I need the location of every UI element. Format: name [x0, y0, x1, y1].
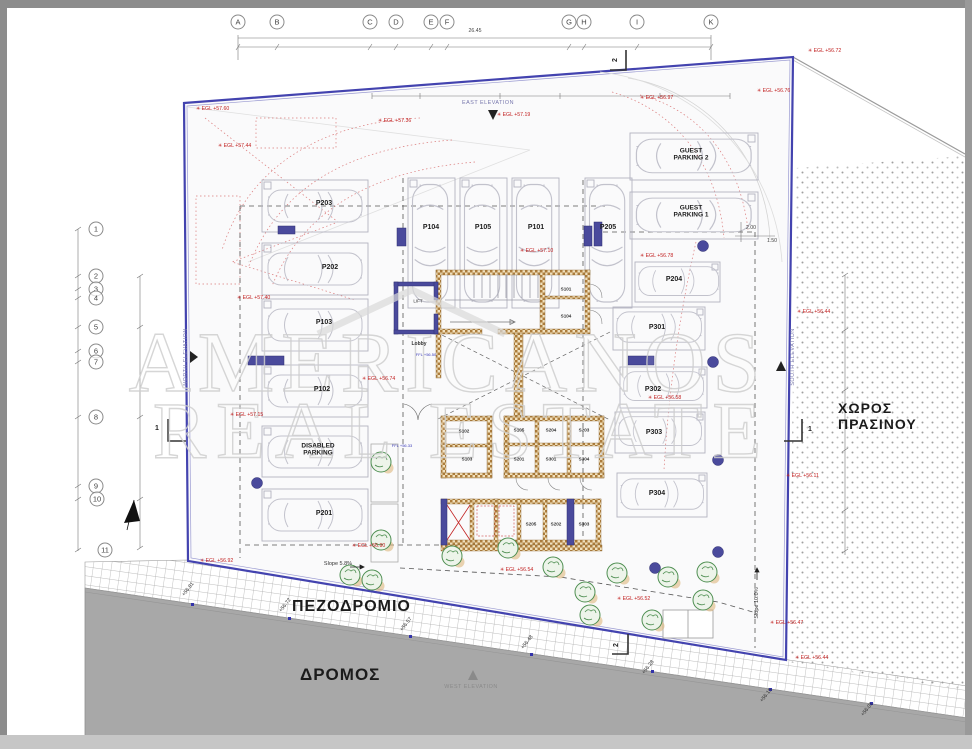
- road-label: ΔΡΟΜΟΣ: [300, 665, 380, 685]
- green-space-label: ΧΩΡΟΣ ΠΡΑΣΙΝΟΥ: [838, 400, 972, 432]
- sidewalk-label: ΠΕΖΟΔΡΟΜΙΟ: [292, 598, 411, 616]
- site-plan-page: AMERICANOS REAL ESTATE ΠΕΖΟΔΡΟΜΙΟ ΔΡΟΜΟΣ…: [0, 0, 972, 749]
- watermark-line2: REAL ESTATE: [153, 387, 771, 478]
- bottom-margin: [0, 735, 972, 749]
